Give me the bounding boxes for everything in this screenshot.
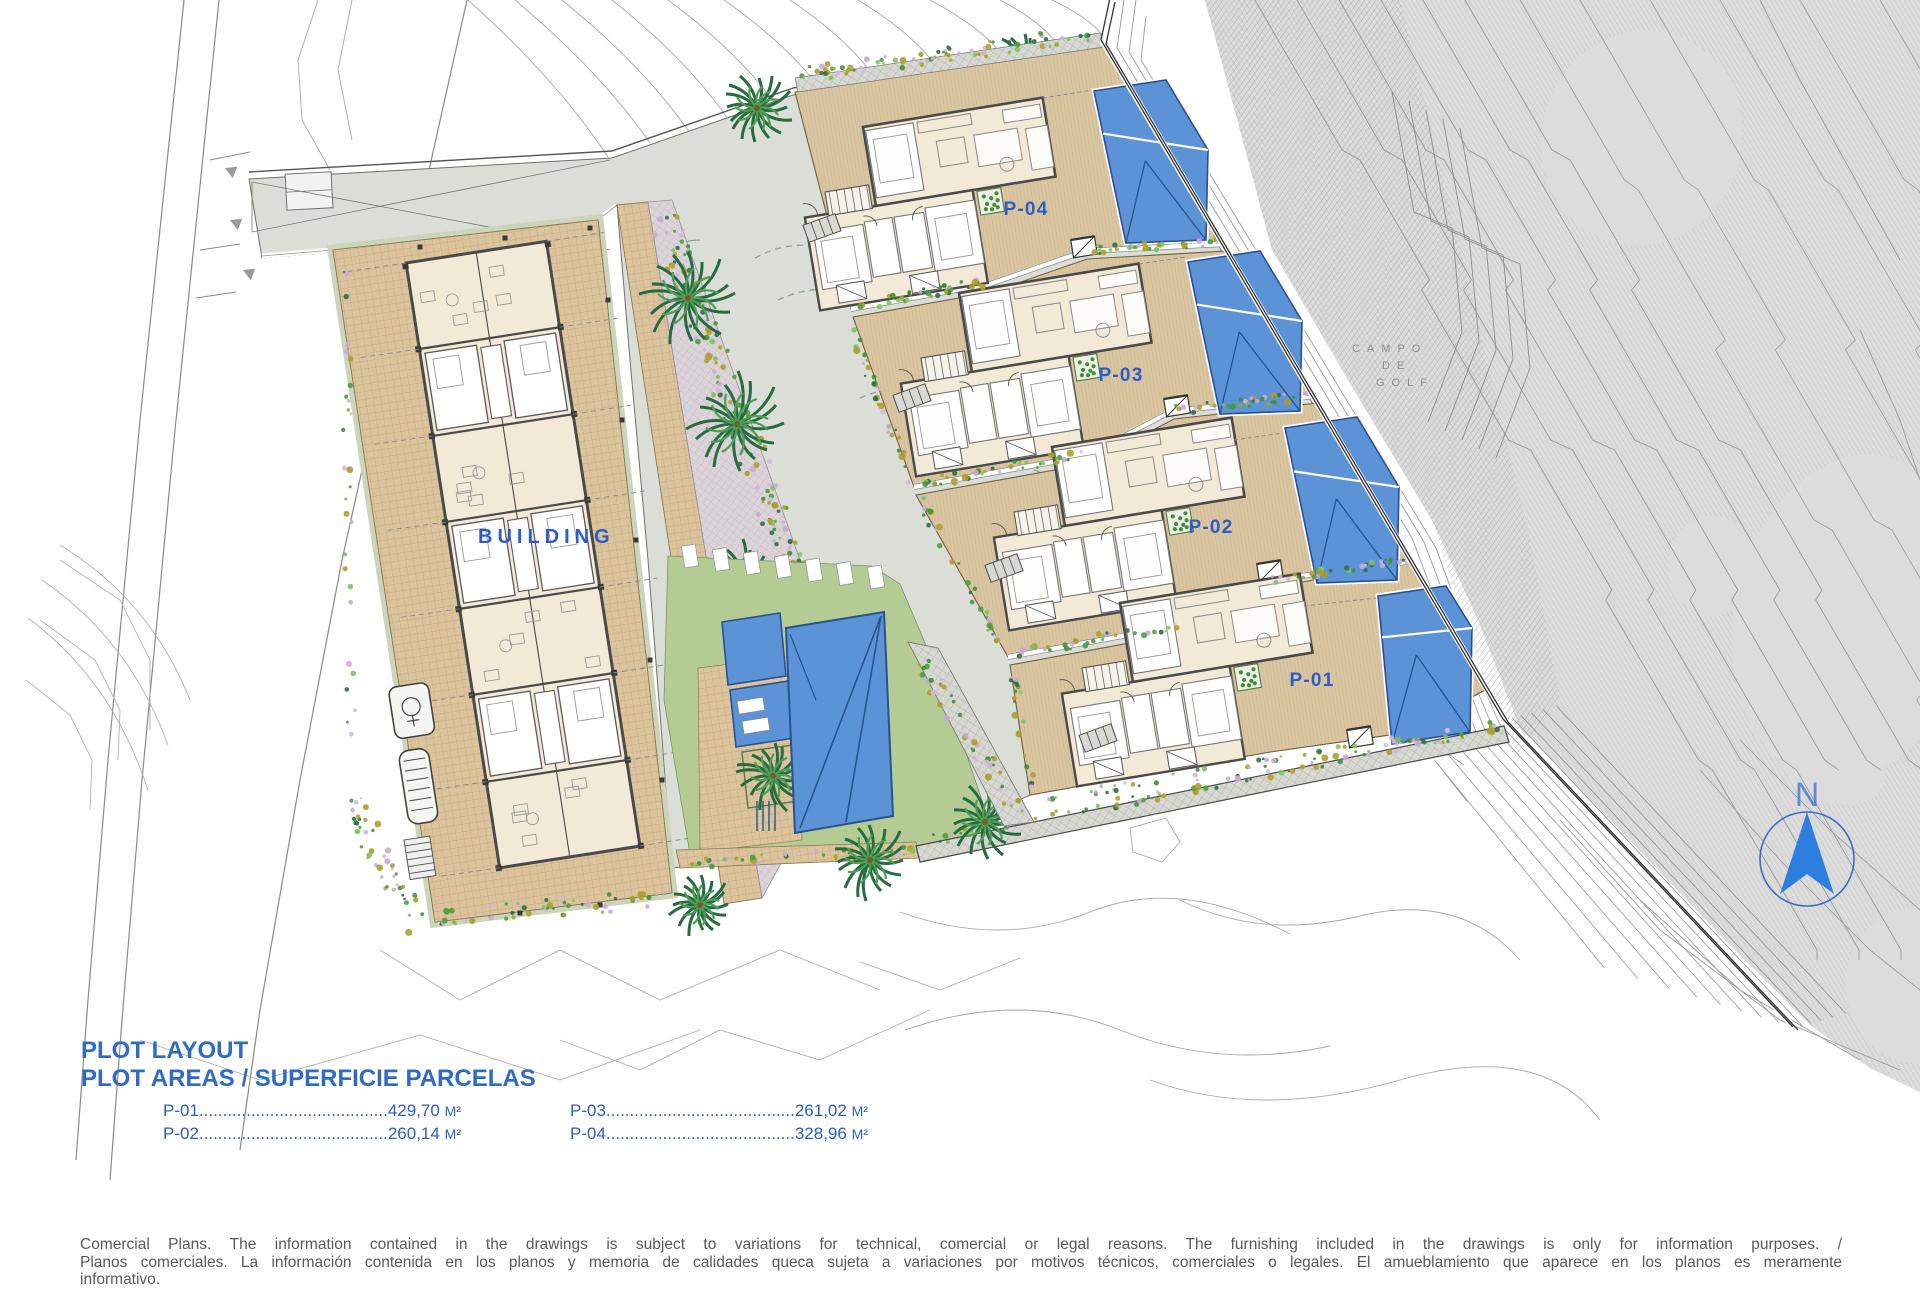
svg-text:P-02: P-02 <box>1189 517 1234 538</box>
svg-text:P-01..........................: P-01....................................… <box>163 1101 461 1120</box>
svg-text:DE: DE <box>1382 360 1411 372</box>
svg-text:CAMPO: CAMPO <box>1352 343 1427 355</box>
svg-text:PLOT AREAS / SUPERFICIE PARCEL: PLOT AREAS / SUPERFICIE PARCELAS <box>81 1065 536 1092</box>
svg-text:P-01: P-01 <box>1290 670 1335 691</box>
svg-text:P-02..........................: P-02....................................… <box>163 1124 461 1143</box>
svg-text:P-03..........................: P-03....................................… <box>570 1101 868 1120</box>
svg-text:BUILDING: BUILDING <box>478 526 615 548</box>
svg-text:N: N <box>1795 776 1820 814</box>
svg-text:P-04..........................: P-04....................................… <box>570 1124 868 1143</box>
svg-text:GOLF: GOLF <box>1376 377 1434 389</box>
svg-text:P-03: P-03 <box>1099 365 1144 386</box>
svg-text:P-04: P-04 <box>1004 199 1049 220</box>
svg-text:PLOT LAYOUT: PLOT LAYOUT <box>81 1037 248 1064</box>
